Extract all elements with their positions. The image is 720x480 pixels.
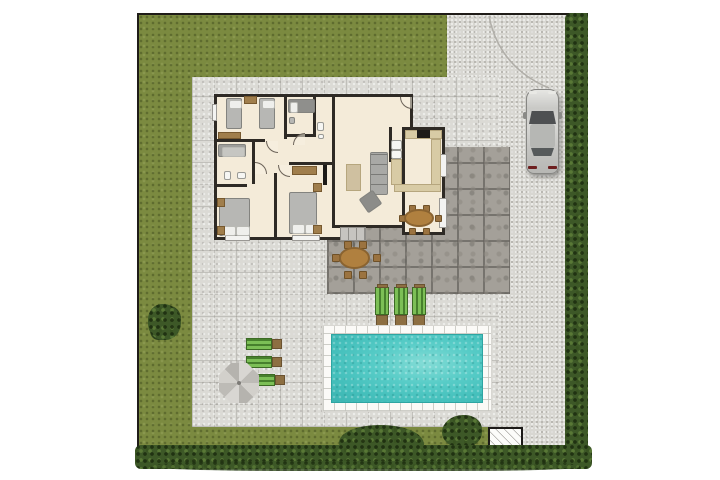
wall-kids-bottom: [217, 139, 265, 142]
wall-bath-bottom: [217, 184, 247, 187]
bath-basin: [237, 172, 246, 179]
stove: [417, 130, 430, 138]
pool-lounger: [394, 287, 408, 315]
car-rear-window: [531, 148, 554, 156]
wall-kids-master: [284, 94, 287, 139]
bath-toilet: [224, 171, 231, 180]
s-nightstand-1: [313, 183, 322, 192]
car: [526, 89, 559, 174]
car-taillight-right: [548, 166, 557, 169]
hedge-bottom-spill: [149, 461, 579, 471]
dining-chair: [409, 228, 416, 235]
sink-unit: [391, 159, 402, 185]
pool-water: [331, 334, 483, 403]
kitchen-counter-bottom: [394, 184, 441, 192]
car-taillight-left: [528, 166, 537, 169]
wall-tv: [323, 165, 327, 185]
washing-machine: [391, 150, 402, 159]
pool-lounger: [375, 287, 389, 315]
dining-table: [404, 209, 434, 227]
patio-chair: [344, 271, 352, 279]
relax-lounger-base: [272, 339, 282, 349]
window-south-2: [292, 235, 320, 241]
coffee-table: [346, 164, 361, 191]
pool-lounger: [412, 287, 426, 315]
car-mirror-right: [558, 112, 562, 119]
terrace-steps: [340, 227, 366, 241]
relax-lounger-base: [272, 357, 282, 367]
car-roof: [530, 124, 555, 148]
sofa: [370, 152, 388, 195]
hedge-right: [565, 13, 588, 457]
window-east-lower: [439, 198, 447, 228]
car-mirror-left: [523, 112, 527, 119]
wall-bedroom-s-left: [274, 173, 277, 237]
dining-chair: [423, 228, 430, 235]
dishwasher: [391, 140, 402, 150]
window-west: [212, 104, 217, 121]
sw-nightstand-2: [217, 226, 225, 235]
kids-sideboard: [218, 132, 241, 139]
relax-lounger-base: [275, 375, 285, 385]
dining-chair: [435, 215, 442, 222]
single-bed-2: [259, 98, 275, 129]
car-headlight-right: [548, 91, 556, 94]
s-dresser: [292, 166, 317, 175]
s-nightstand-2: [313, 225, 322, 234]
site-plan-page: { "meta": { "title": "Villa plot site pl…: [0, 0, 720, 480]
ensuite-basin: [318, 134, 324, 139]
patio-table: [339, 247, 370, 269]
relax-lounger: [246, 338, 272, 350]
sw-nightstand-1: [217, 198, 225, 207]
parasol-pole: [237, 381, 241, 385]
car-windshield: [529, 111, 556, 124]
bathtub: [218, 144, 246, 157]
kids-dresser: [244, 96, 257, 104]
ensuite-toilet: [317, 122, 324, 131]
single-bed-1: [226, 98, 242, 129]
plot-boundary: [137, 13, 588, 455]
patio-chair: [373, 254, 381, 262]
garden-tree-bottom-right: [442, 415, 482, 448]
patio-chair: [359, 271, 367, 279]
master-bed: [288, 99, 315, 113]
master-stool: [289, 117, 295, 124]
car-headlight-left: [529, 91, 537, 94]
garden-shrub-left: [148, 304, 181, 340]
